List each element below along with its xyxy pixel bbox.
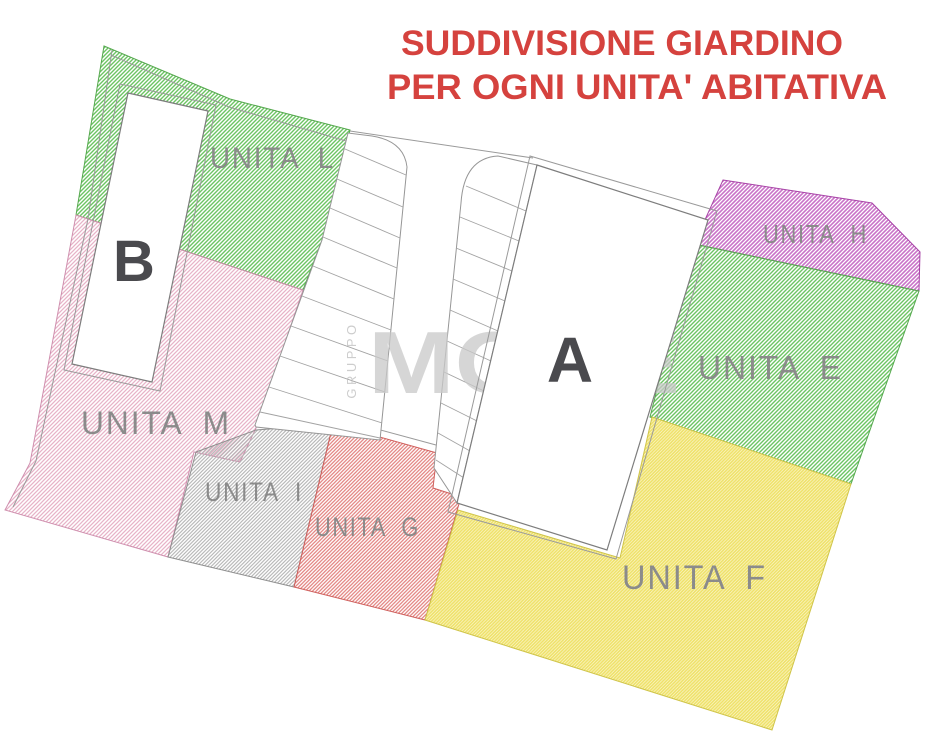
unit-H-label: UNITA H [763,219,868,249]
unit-L-label: UNITA L [210,142,335,175]
building-b-letter: B [113,229,155,294]
unit-G-label: UNITA G [315,512,420,542]
title-line-2: PER OGNI UNITA' ABITATIVA [387,68,887,107]
unit-I-label: UNITA I [205,477,303,507]
unit-M-label: UNITA M [81,405,231,441]
building-a-letter: A [547,324,593,396]
site-plan-drawing: MORE REAL ESTATE GRUPPO B A UNITA L UNIT… [0,0,932,738]
unit-F-label: UNITA F [622,559,767,597]
page-title: SUDDIVISIONE GIARDINO PER OGNI UNITA' AB… [387,24,887,107]
title-line-1: SUDDIVISIONE GIARDINO [401,24,843,63]
site-plan-page: MORE REAL ESTATE GRUPPO B A UNITA L UNIT… [0,0,932,738]
watermark-vertical: GRUPPO [344,321,359,398]
unit-E-label: UNITA E [698,349,843,386]
